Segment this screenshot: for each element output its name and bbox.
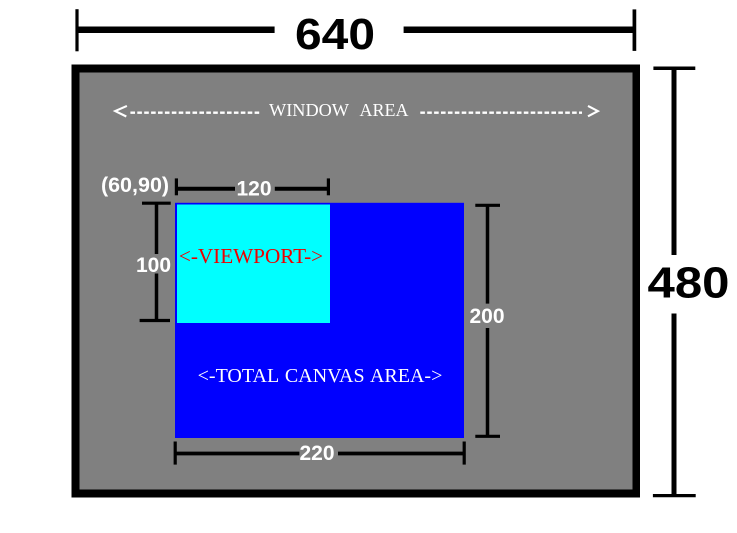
svg-text:<-TOTAL CANVAS AREA->: <-TOTAL CANVAS AREA-> <box>198 365 443 387</box>
svg-text:<-VIEWPORT->: <-VIEWPORT-> <box>179 244 323 268</box>
svg-text:220: 220 <box>299 442 334 465</box>
svg-text:640: 640 <box>295 10 375 59</box>
svg-text:WINDOW: WINDOW <box>269 100 349 120</box>
svg-text:(60,90): (60,90) <box>101 173 169 197</box>
svg-text:AREA: AREA <box>360 100 409 120</box>
svg-text:200: 200 <box>469 305 504 328</box>
svg-text:100: 100 <box>136 254 171 277</box>
svg-text:480: 480 <box>648 259 730 308</box>
svg-text:120: 120 <box>236 177 271 200</box>
